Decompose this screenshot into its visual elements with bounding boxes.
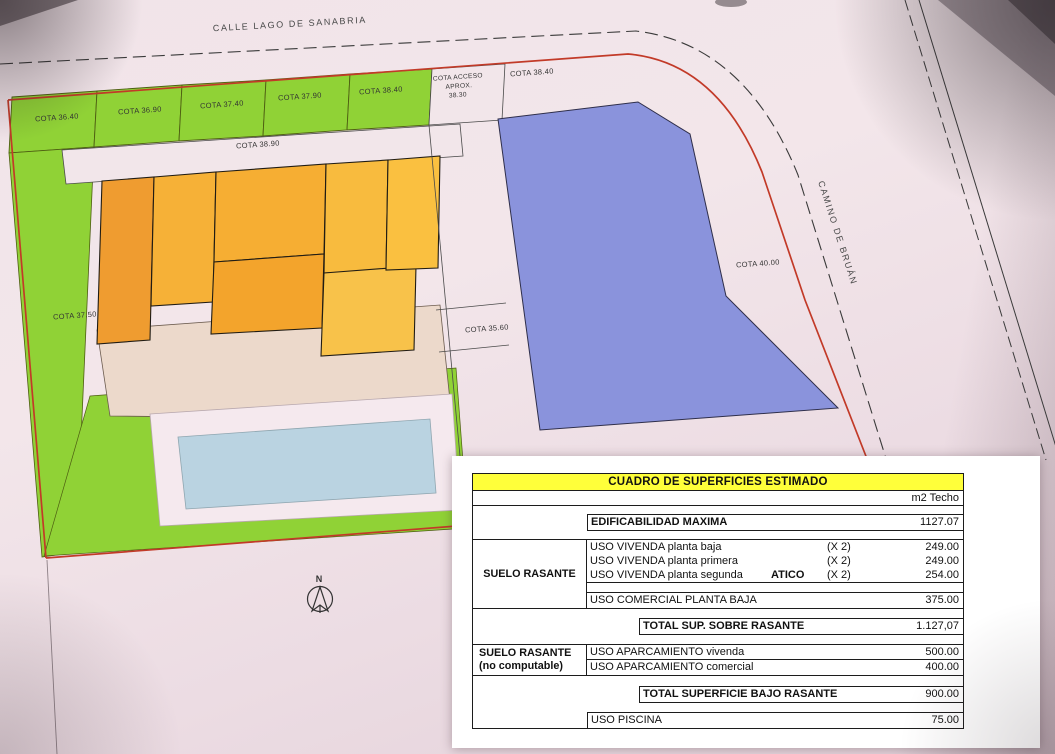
row-label: USO VIVENDA planta baja (590, 540, 771, 554)
building-block (151, 172, 216, 306)
strip-cota-37-40 (179, 80, 266, 141)
surface-table-panel: CUADRO DE SUPERFICIES ESTIMADO m2 Techo … (452, 456, 1040, 748)
building-block (211, 254, 324, 334)
total-sobre-rasante-row: TOTAL SUP. SOBRE RASANTE 1.127,07 (639, 618, 963, 635)
row-label: USO COMERCIAL PLANTA BAJA (590, 593, 757, 608)
building-blocks (97, 156, 440, 356)
total-label: TOTAL SUPERFICIE BAJO RASANTE (643, 687, 837, 702)
total-bajo-rasante-row: TOTAL SUPERFICIE BAJO RASANTE 900.00 (639, 686, 963, 703)
suelo-rasante-group: SUELO RASANTE USO VIVENDA planta baja (X… (473, 539, 963, 609)
cota-label: COTA 38.40 (510, 66, 554, 78)
piscina-row: USO PISCINA 75.00 (587, 712, 963, 728)
row-mult: (X 2) (827, 554, 891, 568)
cota-label: COTA 37.50 (53, 309, 97, 321)
north-label: N (316, 574, 323, 584)
site-plan-photo: CALLE LAGO DE SANABRIA CAMINO DE BRUÁN C… (0, 0, 1055, 754)
row-mult: (X 2) (827, 540, 891, 554)
row-value: 249.00 (891, 540, 963, 554)
table-row: USO VIVENDA planta primera (X 2) 249.00 (587, 554, 963, 568)
row-label: USO VIVENDA planta segunda (590, 568, 771, 582)
edificabilidad-row: EDIFICABILIDAD MAXIMA 1127.07 (587, 514, 963, 531)
bajo-rasante-sublabel: (no computable) (479, 660, 563, 673)
row-value: 375.00 (925, 593, 963, 608)
row-value: 400.00 (925, 660, 963, 675)
building-block (386, 156, 440, 270)
street-label-camino: CAMINO DE BRUÁN (816, 180, 859, 287)
edificabilidad-label: EDIFICABILIDAD MAXIMA (591, 515, 727, 530)
building-block (324, 160, 388, 273)
strip-cota-38-40 (347, 69, 432, 130)
row-note (771, 540, 827, 554)
table-row: USO APARCAMIENTO comercial 400.00 (587, 660, 963, 675)
cota-label: COTA 35.60 (465, 322, 509, 334)
photo-edge-shadow (715, 0, 747, 7)
total-label: TOTAL SUP. SOBRE RASANTE (643, 619, 804, 634)
cota-label: COTA 40.00 (736, 257, 780, 269)
table-row: USO APARCAMIENTO vivenda 500.00 (587, 645, 963, 660)
row-note: ATICO (771, 568, 827, 582)
row-label: USO VIVENDA planta primera (590, 554, 771, 568)
bajo-rasante-label: SUELO RASANTE (479, 647, 571, 660)
bajo-rasante-group: SUELO RASANTE (no computable) USO APARCA… (473, 644, 963, 676)
row-value: 254.00 (891, 568, 963, 582)
row-value: 249.00 (891, 554, 963, 568)
building-block (321, 266, 416, 356)
surface-table: CUADRO DE SUPERFICIES ESTIMADO m2 Techo … (472, 473, 964, 729)
row-mult: (X 2) (827, 568, 891, 582)
street-label-calle: CALLE LAGO DE SANABRIA (213, 15, 368, 34)
row-note (771, 554, 827, 568)
row-value: 500.00 (925, 645, 963, 659)
edificabilidad-value: 1127.07 (920, 515, 963, 530)
total-value: 900.00 (925, 687, 963, 702)
strip-cota-36-90 (94, 85, 182, 147)
unit-header: m2 Techo (473, 491, 963, 506)
comercial-row: USO COMERCIAL PLANTA BAJA 375.00 (587, 593, 963, 608)
row-label: USO PISCINA (591, 713, 662, 728)
suelo-rasante-label: SUELO RASANTE (473, 540, 587, 608)
building-block (97, 177, 154, 344)
table-row: USO VIVENDA planta baja (X 2) 249.00 (587, 540, 963, 554)
row-label: USO APARCAMIENTO vivenda (590, 645, 744, 659)
row-value: 75.00 (931, 713, 963, 728)
table-row: USO VIVENDA planta segunda ATICO (X 2) 2… (587, 568, 963, 582)
total-value: 1.127,07 (916, 619, 963, 634)
cota-label: 38.30 (449, 91, 467, 99)
building-block (214, 164, 326, 262)
photo-corner-dark (0, 0, 78, 26)
table-title: CUADRO DE SUPERFICIES ESTIMADO (473, 474, 963, 491)
row-label: USO APARCAMIENTO comercial (590, 660, 753, 675)
strip-cota-37-90 (263, 74, 350, 136)
paper-fold-line (47, 560, 57, 754)
north-arrow-icon: N (308, 574, 333, 613)
